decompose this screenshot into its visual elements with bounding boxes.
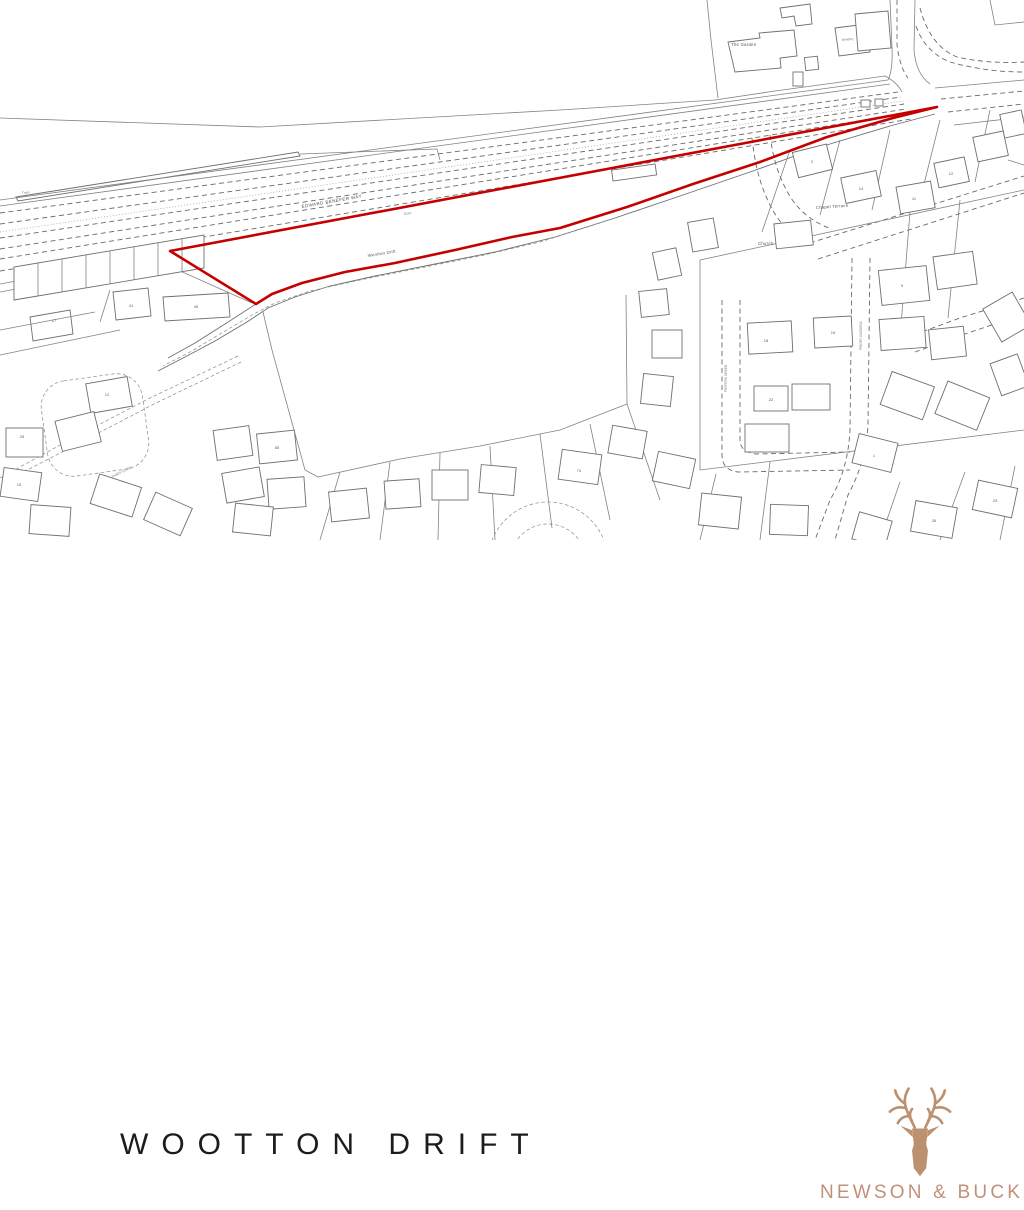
the-garden-label: The Garden: [731, 42, 757, 47]
brand-logo: NEWSON & BUCK: [820, 1086, 1020, 1210]
junction-roads: [888, 0, 1024, 125]
james-close-label: JAMES CLOSE: [111, 465, 133, 479]
house-number: 41: [129, 303, 134, 308]
house-number: 85: [275, 445, 280, 450]
house-number: 25: [20, 434, 25, 439]
peppers-green-label: PEPPERS GREEN: [724, 364, 728, 392]
map-labels: EDWARD BENEFER WAY Wootton Drift Drain T…: [17, 37, 998, 523]
track-label: Track: [22, 190, 31, 195]
site-plan-map: EDWARD BENEFER WAY Wootton Drift Drain T…: [0, 0, 1024, 540]
title-band: WOOTTON DRIFT: [0, 540, 1024, 682]
priory-gardens-label: PRIORY GARDENS: [859, 321, 863, 350]
church-label: Church: [758, 241, 774, 246]
house-number: 12: [949, 171, 954, 176]
chapel-terrace-label: Chapel Terrace: [816, 203, 849, 210]
site-road-label: Wootton Drift: [367, 249, 396, 258]
house-number: 26: [932, 518, 937, 523]
house-number: 17: [52, 318, 57, 323]
drain-label: Drain: [404, 211, 412, 216]
brand-name: NEWSON & BUCK: [820, 1182, 1020, 1204]
house-number: 15: [17, 482, 22, 487]
stag-icon: [872, 1086, 968, 1178]
map-svg: EDWARD BENEFER WAY Wootton Drift Drain T…: [0, 0, 1024, 540]
house-number: 14: [859, 186, 864, 191]
house-number: 12: [105, 392, 110, 397]
south-houses: [213, 404, 660, 540]
main-road-label: EDWARD BENEFER WAY: [301, 193, 362, 209]
house-number: 74: [577, 468, 582, 473]
left-houses: [0, 235, 230, 536]
house-number: 23: [993, 498, 998, 503]
house-number: 49: [194, 304, 199, 309]
house-number: 22: [769, 397, 774, 402]
development-title: WOOTTON DRIFT: [120, 1128, 542, 1162]
house-number: 18: [764, 338, 769, 343]
house-number: 15: [831, 330, 836, 335]
estate-buildings: [639, 110, 1024, 540]
